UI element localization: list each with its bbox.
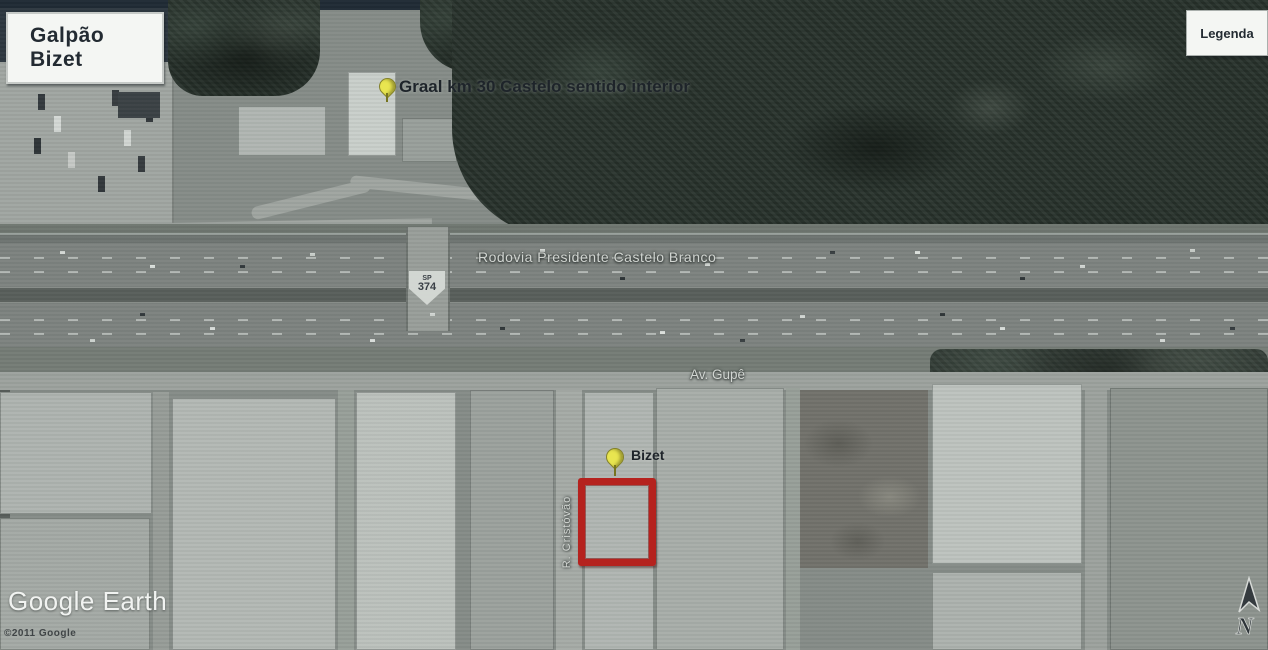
- pushpin-bizet-label: Bizet: [631, 447, 664, 463]
- map-title-box: Galpão Bizet: [6, 12, 164, 84]
- north-compass: N: [1222, 576, 1268, 644]
- north-letter: N: [1235, 614, 1255, 640]
- carriageway-south: [0, 303, 1268, 347]
- warehouse-roof: [470, 390, 554, 650]
- truck-dots: [28, 86, 35, 102]
- dirt-lot: [800, 390, 928, 568]
- street-name-vertical-label: R. Cristóvão: [561, 457, 573, 607]
- building-block: [402, 118, 457, 162]
- warehouse-roof: [172, 398, 336, 650]
- lane-marking: [0, 333, 1268, 335]
- legend-box: Legenda: [1186, 10, 1268, 56]
- pushpin-stem: [614, 465, 616, 476]
- warehouse-roof: [932, 572, 1082, 650]
- forest-area: [452, 0, 1268, 238]
- warehouse-roof: [656, 388, 784, 650]
- lane-marking: [0, 271, 1268, 273]
- pushpin-graal-label: Graal km 30 Castelo sentido interior: [399, 77, 690, 97]
- pushpin-graal[interactable]: [378, 76, 398, 106]
- map-title-text: Galpão Bizet: [30, 24, 162, 72]
- google-earth-watermark: Google Earth: [8, 586, 167, 617]
- warehouse-roof: [356, 392, 456, 650]
- copyright-label: ©2011 Google: [4, 628, 76, 639]
- vehicle-dots-dark: [0, 235, 5, 238]
- highway-median: [0, 287, 1268, 303]
- side-street: [786, 388, 800, 650]
- warehouse-roof: [932, 384, 1082, 564]
- forest-area: [168, 0, 320, 96]
- building-block: [118, 92, 160, 118]
- road-shield-number: 374: [418, 282, 436, 293]
- avenue-name-label: Av. Gupê: [690, 367, 745, 382]
- north-arrow-icon: N: [1222, 576, 1268, 644]
- warehouse-roof: [0, 392, 152, 514]
- pushpin-bizet[interactable]: [605, 446, 625, 478]
- building-block: [238, 106, 326, 156]
- lane-marking: [0, 319, 1268, 321]
- map-canvas[interactable]: Galpão Bizet Legenda Graal km 30 Castelo…: [0, 0, 1268, 650]
- property-highlight-rectangle: [578, 478, 656, 566]
- legend-label: Legenda: [1200, 26, 1253, 41]
- highway-name-label: Rodovia Presidente Castelo Branco: [478, 249, 716, 265]
- side-street: [338, 390, 354, 650]
- vertical-street: [1085, 380, 1107, 650]
- industrial-yard: [0, 62, 174, 234]
- pushpin-stem: [386, 93, 388, 102]
